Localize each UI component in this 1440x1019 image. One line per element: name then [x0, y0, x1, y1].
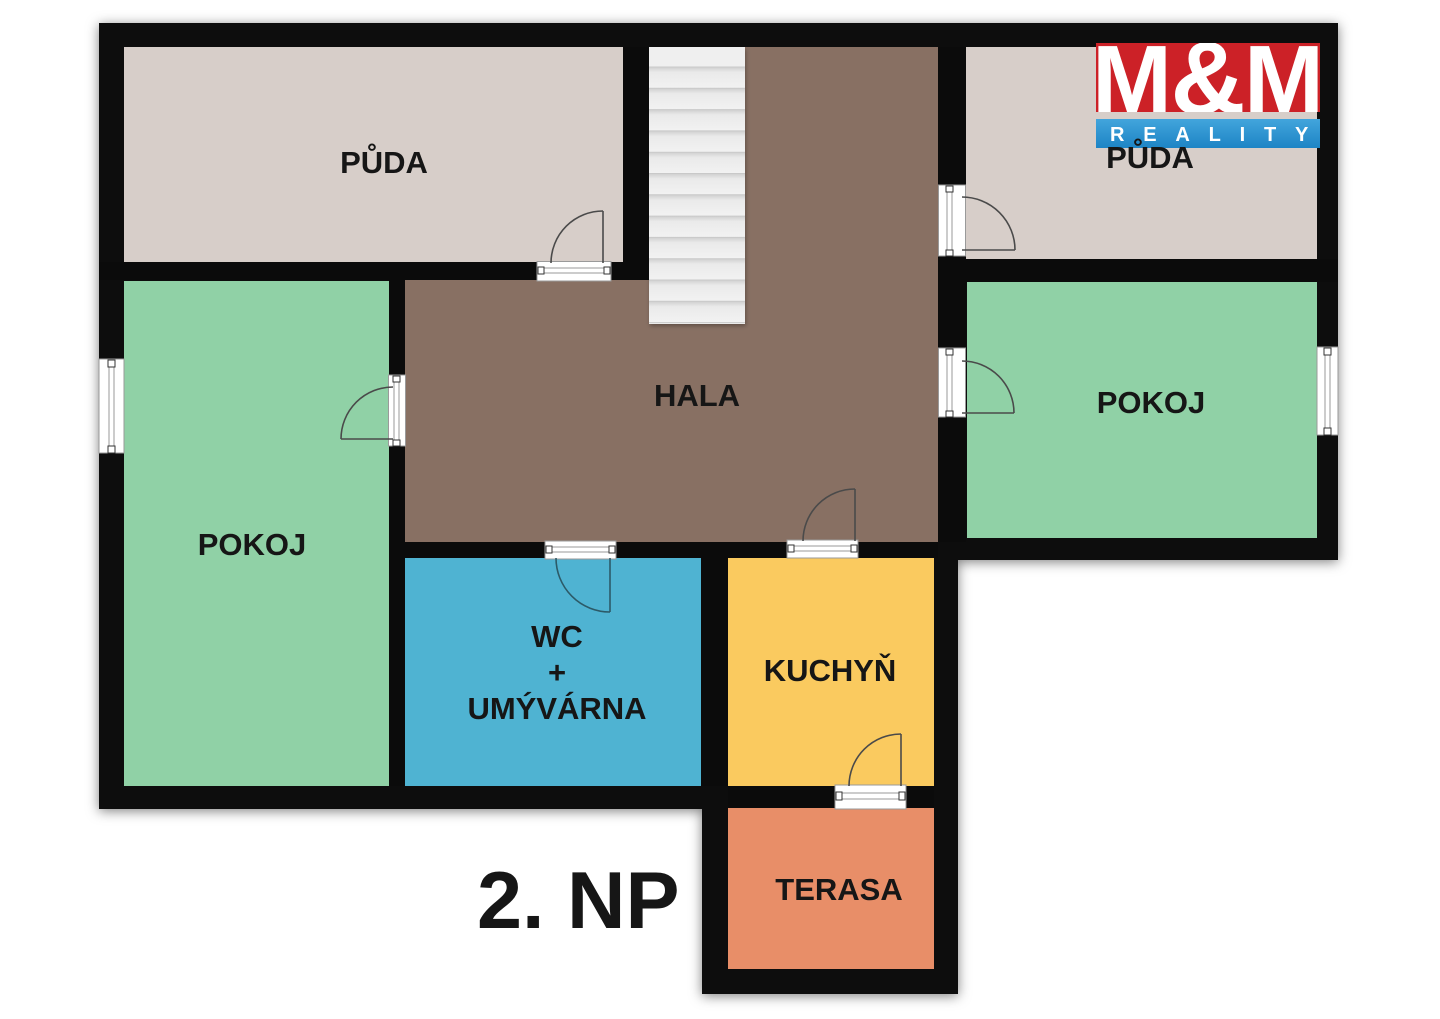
svg-text:HALA: HALA	[654, 378, 740, 413]
svg-text:+: +	[548, 655, 566, 690]
svg-text:POKOJ: POKOJ	[198, 527, 307, 562]
svg-text:PŮDA: PŮDA	[1106, 137, 1194, 175]
svg-text:PŮDA: PŮDA	[340, 142, 428, 180]
svg-text:TERASA: TERASA	[775, 872, 902, 907]
svg-text:WC: WC	[531, 619, 583, 654]
svg-text:POKOJ: POKOJ	[1097, 385, 1206, 420]
svg-text:2. NP: 2. NP	[477, 856, 680, 946]
svg-text:UMÝVÁRNA: UMÝVÁRNA	[467, 691, 646, 726]
svg-text:KUCHYŇ: KUCHYŇ	[764, 652, 897, 688]
